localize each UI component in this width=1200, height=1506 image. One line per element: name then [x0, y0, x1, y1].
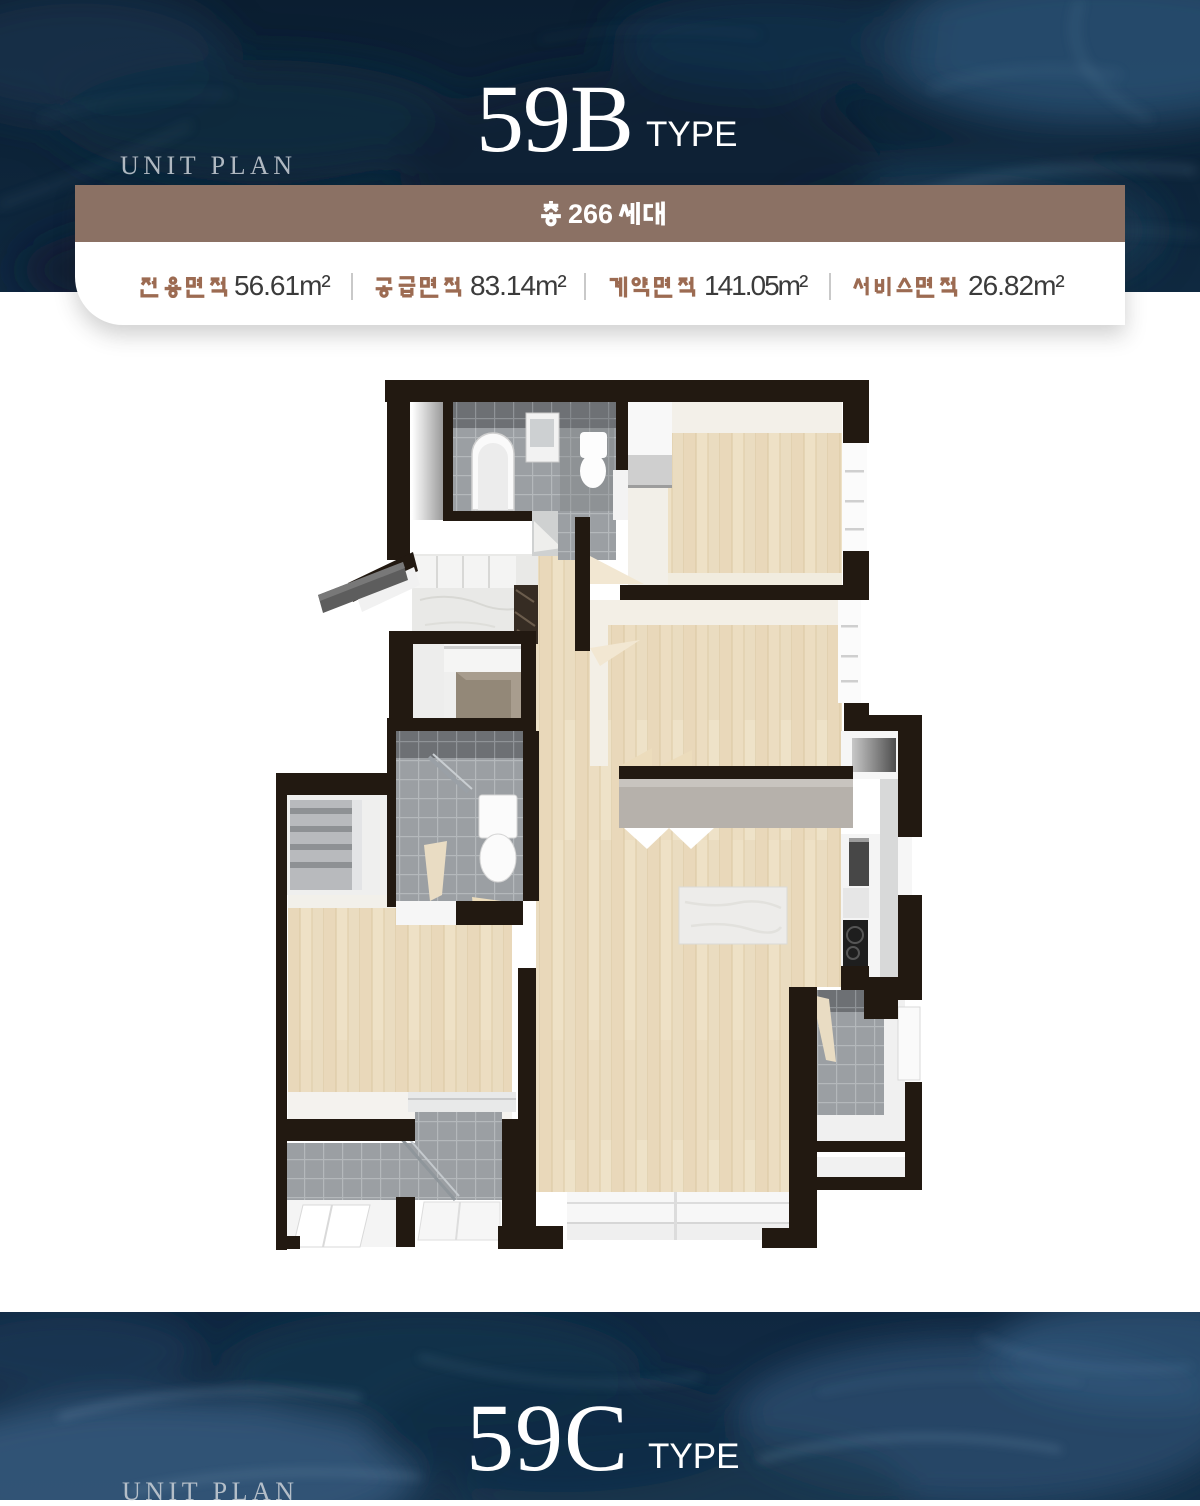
svg-text:266: 266	[568, 200, 613, 228]
